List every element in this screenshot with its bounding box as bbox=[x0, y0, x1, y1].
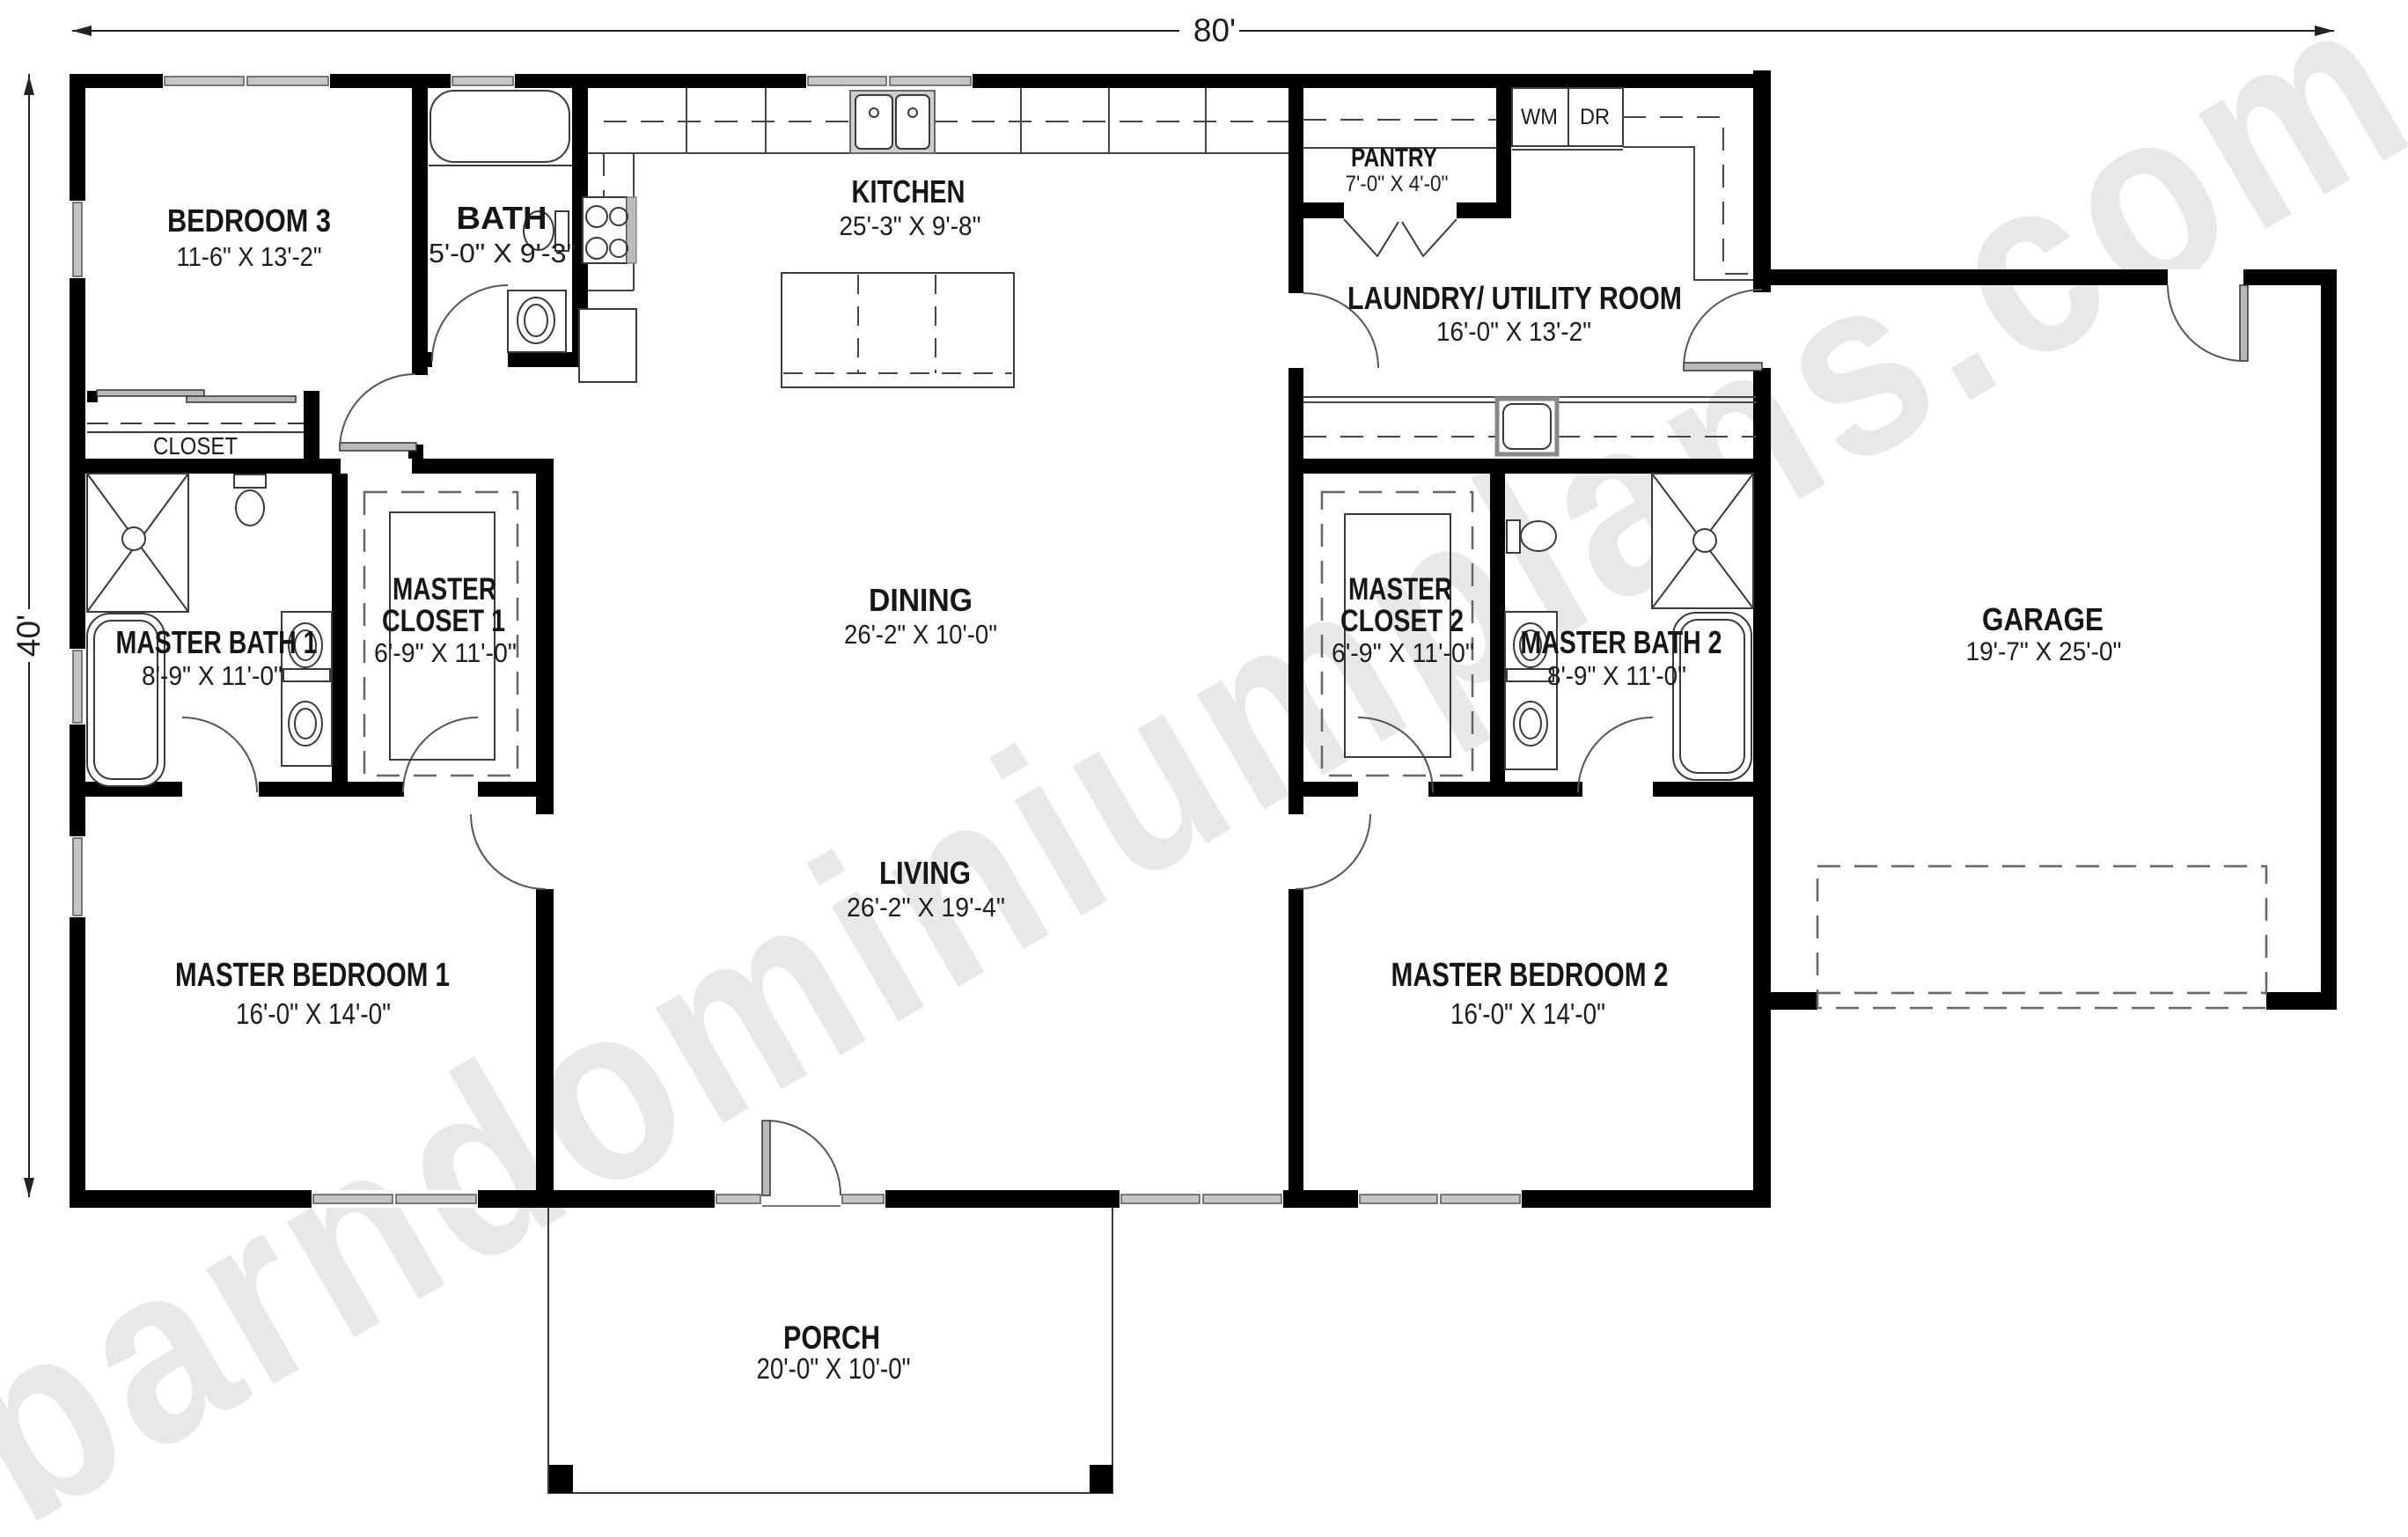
svg-text:CLOSET 1: CLOSET 1 bbox=[382, 604, 505, 638]
svg-text:MASTER: MASTER bbox=[393, 572, 496, 607]
svg-text:PANTRY: PANTRY bbox=[1351, 143, 1437, 173]
svg-text:6'-9" X 11'-0": 6'-9" X 11'-0" bbox=[1332, 637, 1474, 668]
svg-text:19'-7" X 25'-0": 19'-7" X 25'-0" bbox=[1966, 637, 2122, 666]
svg-text:BATH: BATH bbox=[457, 200, 547, 236]
svg-text:16'-0" X 13'-2": 16'-0" X 13'-2" bbox=[1436, 316, 1591, 347]
svg-text:MASTER: MASTER bbox=[1348, 572, 1452, 607]
svg-text:MASTER BEDROOM 1: MASTER BEDROOM 1 bbox=[175, 957, 450, 994]
svg-text:6'-9" X 11'-0": 6'-9" X 11'-0" bbox=[374, 637, 517, 668]
svg-text:LAUNDRY/ UTILITY ROOM: LAUNDRY/ UTILITY ROOM bbox=[1347, 280, 1682, 316]
svg-text:16'-0" X 14'-0": 16'-0" X 14'-0" bbox=[236, 997, 391, 1030]
svg-text:LIVING: LIVING bbox=[879, 855, 971, 891]
svg-text:WM: WM bbox=[1521, 105, 1558, 129]
svg-text:8'-9" X 11'-0": 8'-9" X 11'-0" bbox=[142, 660, 283, 691]
svg-text:MASTER BEDROOM 2: MASTER BEDROOM 2 bbox=[1391, 957, 1669, 994]
svg-text:CLOSET 2: CLOSET 2 bbox=[1340, 604, 1464, 638]
svg-text:BEDROOM 3: BEDROOM 3 bbox=[167, 202, 331, 239]
svg-text:DINING: DINING bbox=[869, 582, 973, 618]
svg-text:7'-0" X 4'-0": 7'-0" X 4'-0" bbox=[1346, 172, 1449, 196]
svg-text:26'-2" X 19'-4": 26'-2" X 19'-4" bbox=[847, 892, 1005, 923]
svg-text:20'-0" X 10'-0": 20'-0" X 10'-0" bbox=[757, 1352, 911, 1385]
svg-text:KITCHEN: KITCHEN bbox=[852, 173, 965, 210]
svg-text:26'-2" X 10'-0": 26'-2" X 10'-0" bbox=[844, 619, 997, 650]
svg-text:16'-0" X 14'-0": 16'-0" X 14'-0" bbox=[1450, 997, 1605, 1030]
svg-text:PORCH: PORCH bbox=[783, 1320, 880, 1356]
svg-text:8'-9" X 11'-0": 8'-9" X 11'-0" bbox=[1547, 660, 1686, 691]
svg-text:MASTER BATH 2: MASTER BATH 2 bbox=[1521, 624, 1722, 660]
svg-text:CLOSET: CLOSET bbox=[153, 432, 238, 460]
svg-text:GARAGE: GARAGE bbox=[1982, 601, 2103, 637]
svg-text:40': 40' bbox=[11, 614, 47, 657]
svg-text:5'-0" X 9'-3": 5'-0" X 9'-3" bbox=[429, 238, 576, 268]
svg-text:11-6" X 13'-2": 11-6" X 13'-2" bbox=[177, 241, 322, 272]
svg-text:MASTER BATH 1: MASTER BATH 1 bbox=[116, 624, 318, 660]
svg-text:80': 80' bbox=[1193, 12, 1236, 48]
svg-text:DR: DR bbox=[1580, 105, 1610, 129]
svg-text:25'-3" X 9'-8": 25'-3" X 9'-8" bbox=[840, 210, 981, 241]
